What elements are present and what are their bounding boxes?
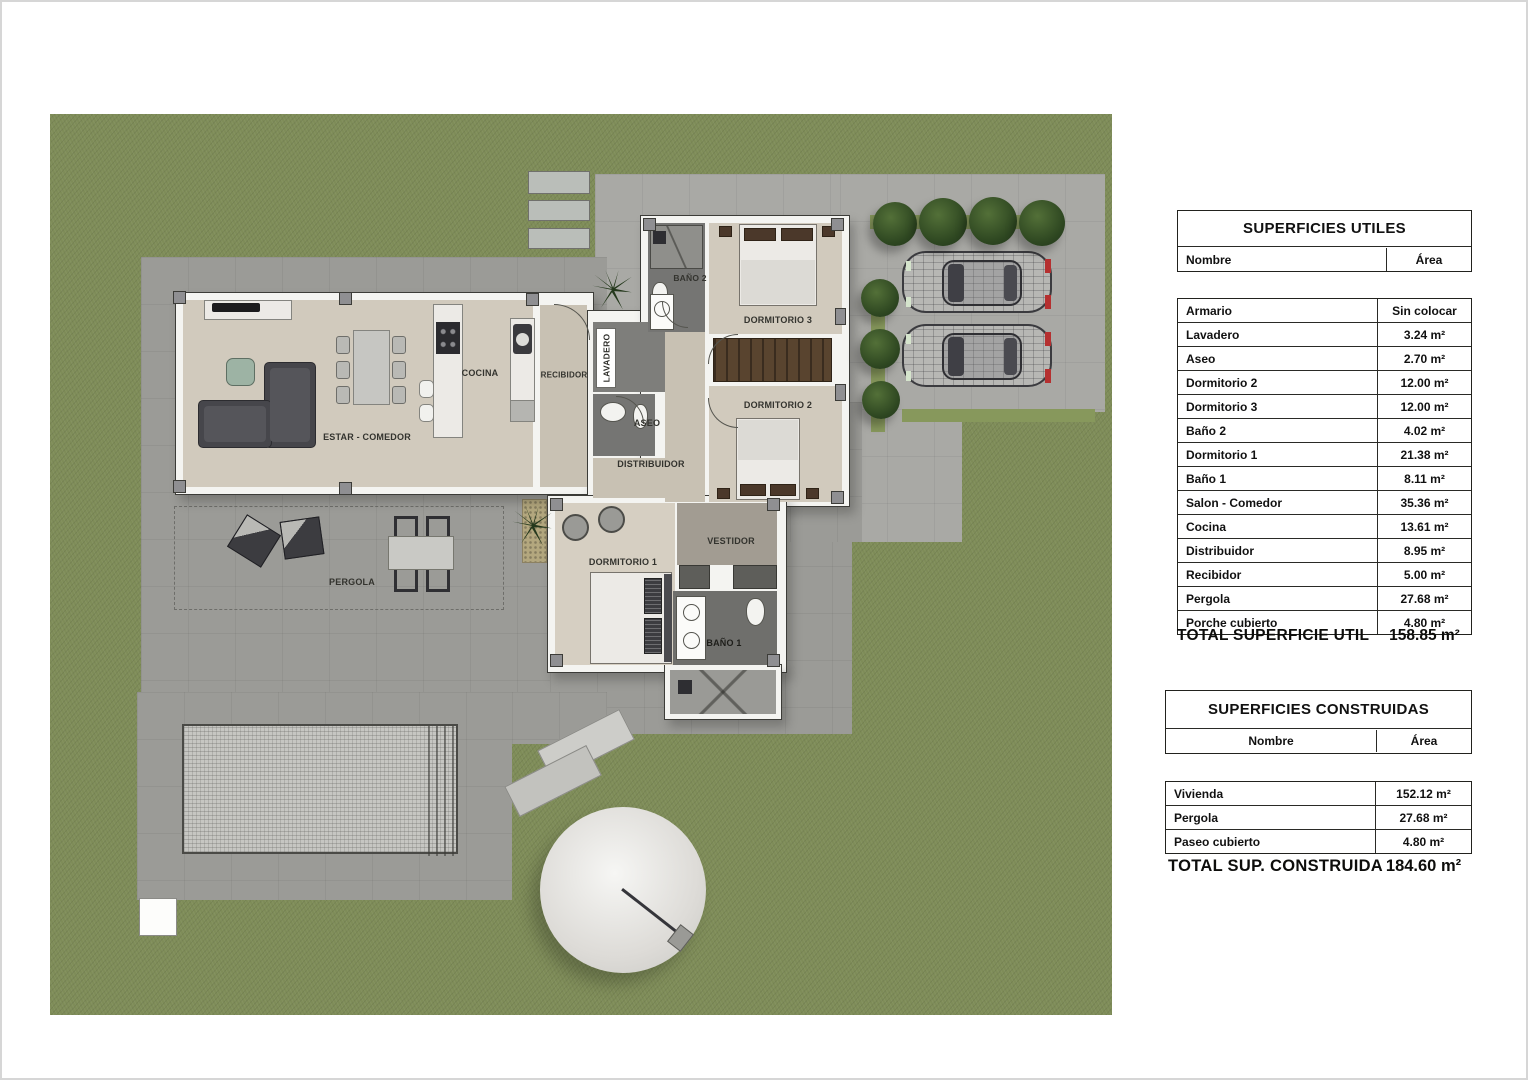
table-construidas-header: SUPERFICIES CONSTRUIDAS Nombre Área [1165,690,1472,754]
floor-plan-sheet: LAVADERO [0,0,1528,1080]
pool-step [436,726,438,856]
cooktop [436,322,460,354]
table-row: ArmarioSin colocar [1178,299,1471,322]
table-row: Paseo cubierto4.80 m² [1166,829,1471,853]
row-area: 3.24 m² [1378,328,1471,342]
tv [212,303,260,312]
bed-blanket [741,260,815,304]
row-name: Salon - Comedor [1178,491,1378,514]
pool-skimmer-box [139,898,177,936]
table-row: Aseo2.70 m² [1178,346,1471,370]
car [902,324,1052,387]
row-area: 2.70 m² [1378,352,1471,366]
lavadero-label-band: LAVADERO [596,328,616,388]
row-name: Baño 1 [1178,467,1378,490]
col-header-nombre: Nombre [1178,248,1387,271]
row-area: 5.00 m² [1378,568,1471,582]
pillar [831,491,844,504]
room-label-bano1: BAÑO 1 [706,638,741,648]
pool-step [428,726,430,856]
nightstand [719,226,732,237]
table-row: Dormitorio 121.38 m² [1178,442,1471,466]
room-label-cocina: COCINA [462,368,499,378]
sofa-cushions [204,406,266,442]
pool-step [444,726,446,856]
car-windshield [948,337,964,376]
table-row: Salon - Comedor35.36 m² [1178,490,1471,514]
table-utiles-body: ArmarioSin colocarLavadero3.24 m²Aseo2.7… [1177,298,1472,635]
pillar [550,654,563,667]
bar-stool [419,404,434,422]
pillar [339,482,352,495]
car [902,251,1052,313]
table-row: Recibidor5.00 m² [1178,562,1471,586]
bed-blanket [738,420,798,460]
tree [919,198,967,246]
car-rear-window [1004,265,1017,301]
pool [182,724,458,854]
car-headlight [906,261,911,271]
pillar [767,498,780,511]
room-label-recibidor: RECIBIDOR [541,371,588,380]
row-name: Dormitorio 3 [1178,395,1378,418]
step-slab [528,228,590,249]
palm-plant [590,268,634,312]
bed-pillow [744,228,776,241]
shower-drain [678,680,692,694]
room-label-lavadero: LAVADERO [601,334,611,383]
pillar [339,292,352,305]
pergola-outline [174,506,504,610]
table-row: Cocina13.61 m² [1178,514,1471,538]
car-taillight [1045,332,1051,346]
row-name: Vivienda [1166,782,1376,805]
sink-bowl [516,333,529,346]
pillar [173,291,186,304]
dining-chair [392,386,406,404]
row-area: 4.02 m² [1378,424,1471,438]
row-name: Recibidor [1178,563,1378,586]
dining-chair [336,336,350,354]
pouf-chair [598,506,625,533]
shower-head [653,231,666,244]
table-utiles-title-row: SUPERFICIES UTILES [1178,211,1471,247]
table-construidas-title-row: SUPERFICIES CONSTRUIDAS [1166,691,1471,729]
row-area: 35.36 m² [1378,496,1471,510]
table-construidas-total-value: 184.60 m² [1377,853,1470,879]
kitchen-lower-unit [510,400,535,422]
row-area: 4.80 m² [1376,835,1471,849]
row-area: 27.68 m² [1376,811,1471,825]
sofa-cushions [270,368,310,442]
row-area: 27.68 m² [1378,592,1471,606]
bed-pillow [770,484,796,496]
table-utiles-total-label: TOTAL SUPERFICIE UTIL [1177,624,1369,648]
table-utiles-title: SUPERFICIES UTILES [1178,211,1471,246]
pillar [835,384,846,401]
table-utiles-total-value: 158.85 m² [1379,624,1470,648]
pillar [526,293,539,306]
pergola-table [388,536,454,570]
row-area: 8.11 m² [1378,472,1471,486]
tree [862,381,900,419]
tree [969,197,1017,245]
room-label-bano2: BAÑO 2 [673,273,706,283]
row-name: Aseo [1178,347,1378,370]
pillar [643,218,656,231]
row-area: 12.00 m² [1378,400,1471,414]
pillar [173,480,186,493]
row-name: Armario [1178,299,1378,322]
room-label-vestidor: VESTIDOR [707,536,755,546]
car-taillight [1045,259,1051,273]
row-name: Cocina [1178,515,1378,538]
table-row: Baño 18.11 m² [1178,466,1471,490]
step-slab [528,200,590,221]
palm-plant [510,502,554,550]
bed-headboard [664,574,672,662]
table-construidas-title: SUPERFICIES CONSTRUIDAS [1166,691,1471,728]
row-area: 12.00 m² [1378,376,1471,390]
bano1-basin [683,632,700,649]
vestidor-wardrobe [679,565,710,589]
table-row: Pergola27.68 m² [1178,586,1471,610]
pergola-chair [280,516,325,559]
dining-chair [336,386,350,404]
car-headlight [906,334,911,344]
bed-pillow [740,484,766,496]
table-utiles-header: SUPERFICIES UTILES Nombre Área [1177,210,1472,272]
vestidor-wardrobe [733,565,777,589]
car-headlight [906,297,911,307]
table-row: Distribuidor8.95 m² [1178,538,1471,562]
row-area: 152.12 m² [1376,787,1471,801]
nightstand [717,488,730,499]
table-construidas-body: Vivienda152.12 m²Pergola27.68 m²Paseo cu… [1165,781,1472,854]
dining-chair [392,361,406,379]
dining-table [353,330,390,405]
row-name: Paseo cubierto [1166,830,1376,853]
coffee-table [226,358,255,386]
table-row: Vivienda152.12 m² [1166,782,1471,805]
floor-distribuidor-v [665,324,705,502]
row-area: 8.95 m² [1378,544,1471,558]
room-label-estar-comedor: ESTAR - COMEDOR [323,432,411,442]
car-headlight [906,371,911,381]
row-name: Pergola [1178,587,1378,610]
row-name: Distribuidor [1178,539,1378,562]
nightstand [806,488,819,499]
room-label-dormitorio3: DORMITORIO 3 [744,315,812,325]
room-label-dormitorio1: DORMITORIO 1 [589,557,657,567]
row-name: Pergola [1166,806,1376,829]
car-taillight [1045,369,1051,383]
row-name: Lavadero [1178,323,1378,346]
bano1-toilet [746,598,765,626]
step-slab [528,171,590,194]
pool-step [452,726,454,856]
tree [860,329,900,369]
bano1-basin [683,604,700,621]
col-header-area: Área [1387,248,1471,271]
bar-stool [419,380,434,398]
tree [861,279,899,317]
dining-chair [392,336,406,354]
bed-pillow [644,578,662,614]
pillar [835,308,846,325]
tree [1019,200,1065,246]
table-construidas-total-label: TOTAL SUP. CONSTRUIDA [1168,853,1383,879]
row-name: Dormitorio 2 [1178,371,1378,394]
table-row: Pergola27.68 m² [1166,805,1471,829]
area-label-pergola: PERGOLA [329,577,375,587]
pillar [831,218,844,231]
table-row: Dormitorio 312.00 m² [1178,394,1471,418]
hedge-strip [902,409,1095,422]
car-taillight [1045,295,1051,309]
row-name: Baño 2 [1178,419,1378,442]
car-rear-window [1004,338,1017,375]
room-label-aseo: ASEO [634,418,660,428]
room-label-dormitorio2: DORMITORIO 2 [744,400,812,410]
table-row: Dormitorio 212.00 m² [1178,370,1471,394]
table-row: Lavadero3.24 m² [1178,322,1471,346]
col-header-nombre: Nombre [1166,730,1377,752]
floor-vestidor [677,503,777,565]
row-area: Sin colocar [1378,304,1471,318]
row-area: 13.61 m² [1378,520,1471,534]
pillar [767,654,780,667]
room-label-distribuidor: DISTRIBUIDOR [617,459,684,469]
bed-pillow [644,618,662,654]
row-name: Dormitorio 1 [1178,443,1378,466]
tree [873,202,917,246]
table-row: Baño 24.02 m² [1178,418,1471,442]
dining-chair [336,361,350,379]
car-windshield [948,264,964,302]
row-area: 21.38 m² [1378,448,1471,462]
bed-pillow [781,228,813,241]
col-header-area: Área [1377,730,1471,752]
pouf-chair [562,514,589,541]
